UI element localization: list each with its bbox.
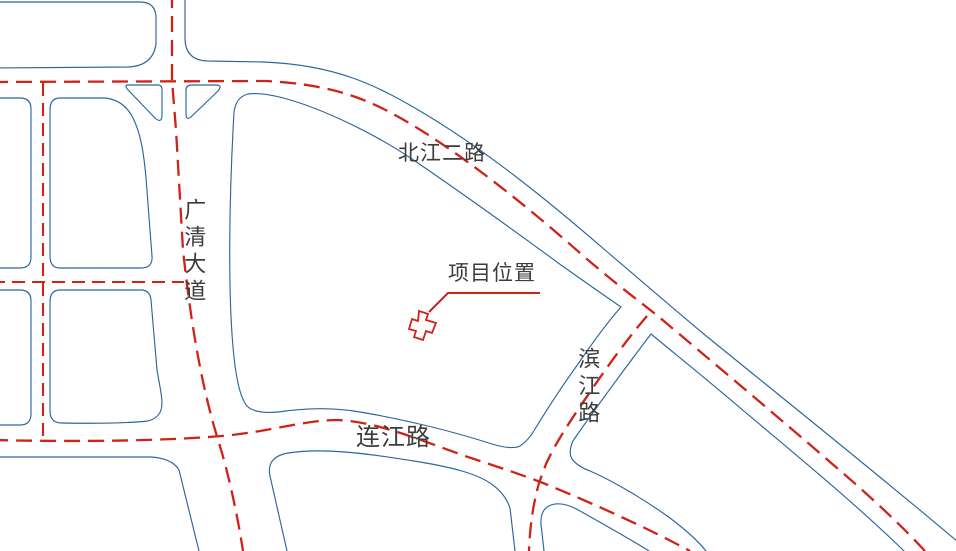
label-project-location: 项目位置 bbox=[448, 262, 536, 285]
lianjiang-centerline bbox=[0, 420, 690, 551]
label-north-road: 北江二路 bbox=[398, 142, 486, 165]
block-west-upper-left bbox=[0, 98, 31, 268]
block-west-lower-right bbox=[50, 290, 162, 423]
leader-line bbox=[429, 293, 540, 312]
label-east-road: 滨江路 bbox=[574, 347, 598, 428]
block-top-left bbox=[0, 2, 156, 68]
project-site-marker bbox=[409, 311, 436, 340]
beijiang-south-edge-east bbox=[651, 334, 904, 551]
block-west-upper-right bbox=[50, 98, 152, 268]
lianjiang-south-edge-west bbox=[0, 457, 199, 551]
beijiang-road-north-edge bbox=[185, 0, 956, 542]
label-west-avenue: 广清大道 bbox=[180, 198, 204, 306]
lianjiang-south-edge-east bbox=[541, 504, 649, 551]
label-south-road: 连江路 bbox=[356, 424, 431, 450]
traffic-island-right bbox=[186, 85, 220, 118]
lianjiang-south-edge-mid bbox=[269, 451, 515, 551]
site-location-map: 北江二路 广清大道 滨江路 连江路 项目位置 bbox=[0, 0, 956, 551]
project-annotation bbox=[409, 293, 540, 340]
block-west-lower-left bbox=[0, 290, 31, 425]
